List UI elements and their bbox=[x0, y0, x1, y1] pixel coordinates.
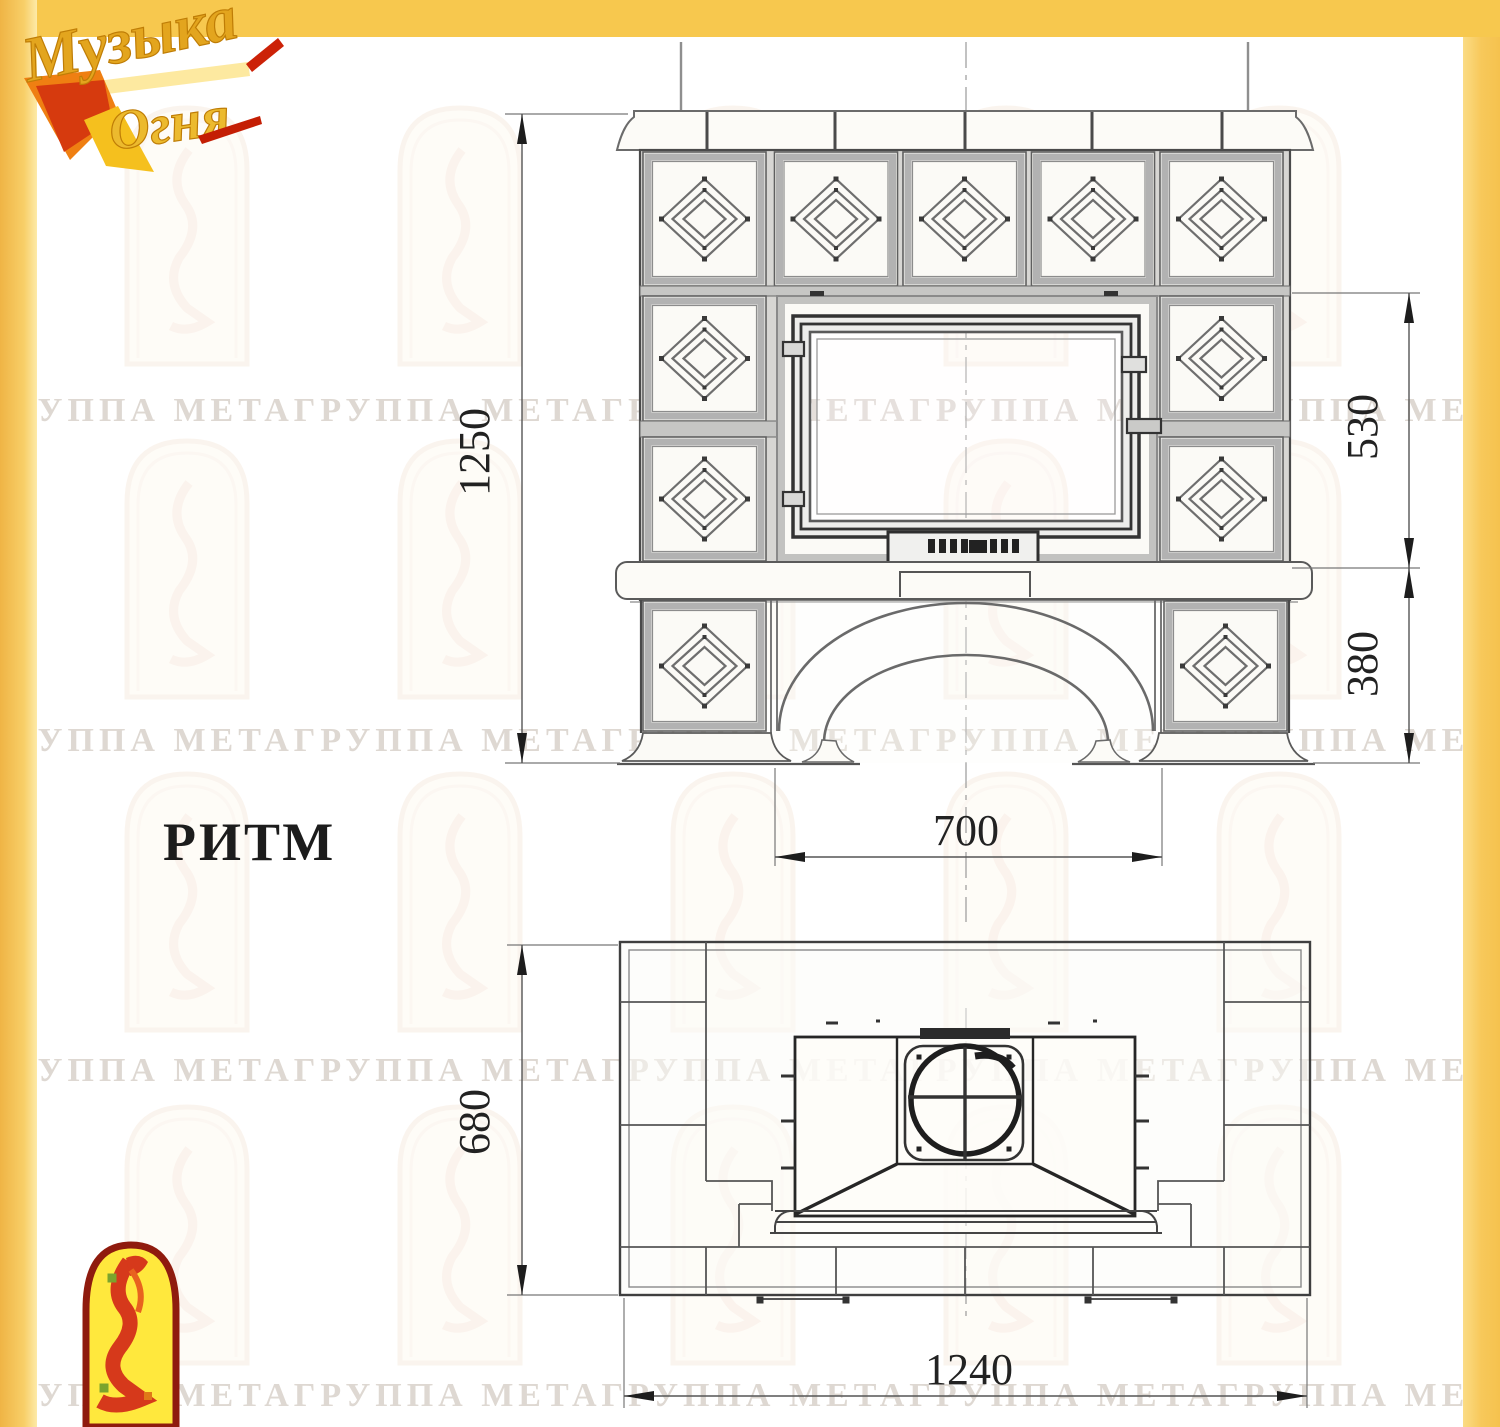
svg-text:1240: 1240 bbox=[925, 1345, 1013, 1394]
svg-text:РИТМ: РИТМ bbox=[163, 812, 336, 872]
svg-text:680: 680 bbox=[450, 1089, 499, 1155]
svg-text:700: 700 bbox=[933, 806, 999, 855]
svg-text:1250: 1250 bbox=[450, 408, 499, 496]
svg-text:380: 380 bbox=[1338, 631, 1387, 697]
svg-text:530: 530 bbox=[1338, 394, 1387, 460]
